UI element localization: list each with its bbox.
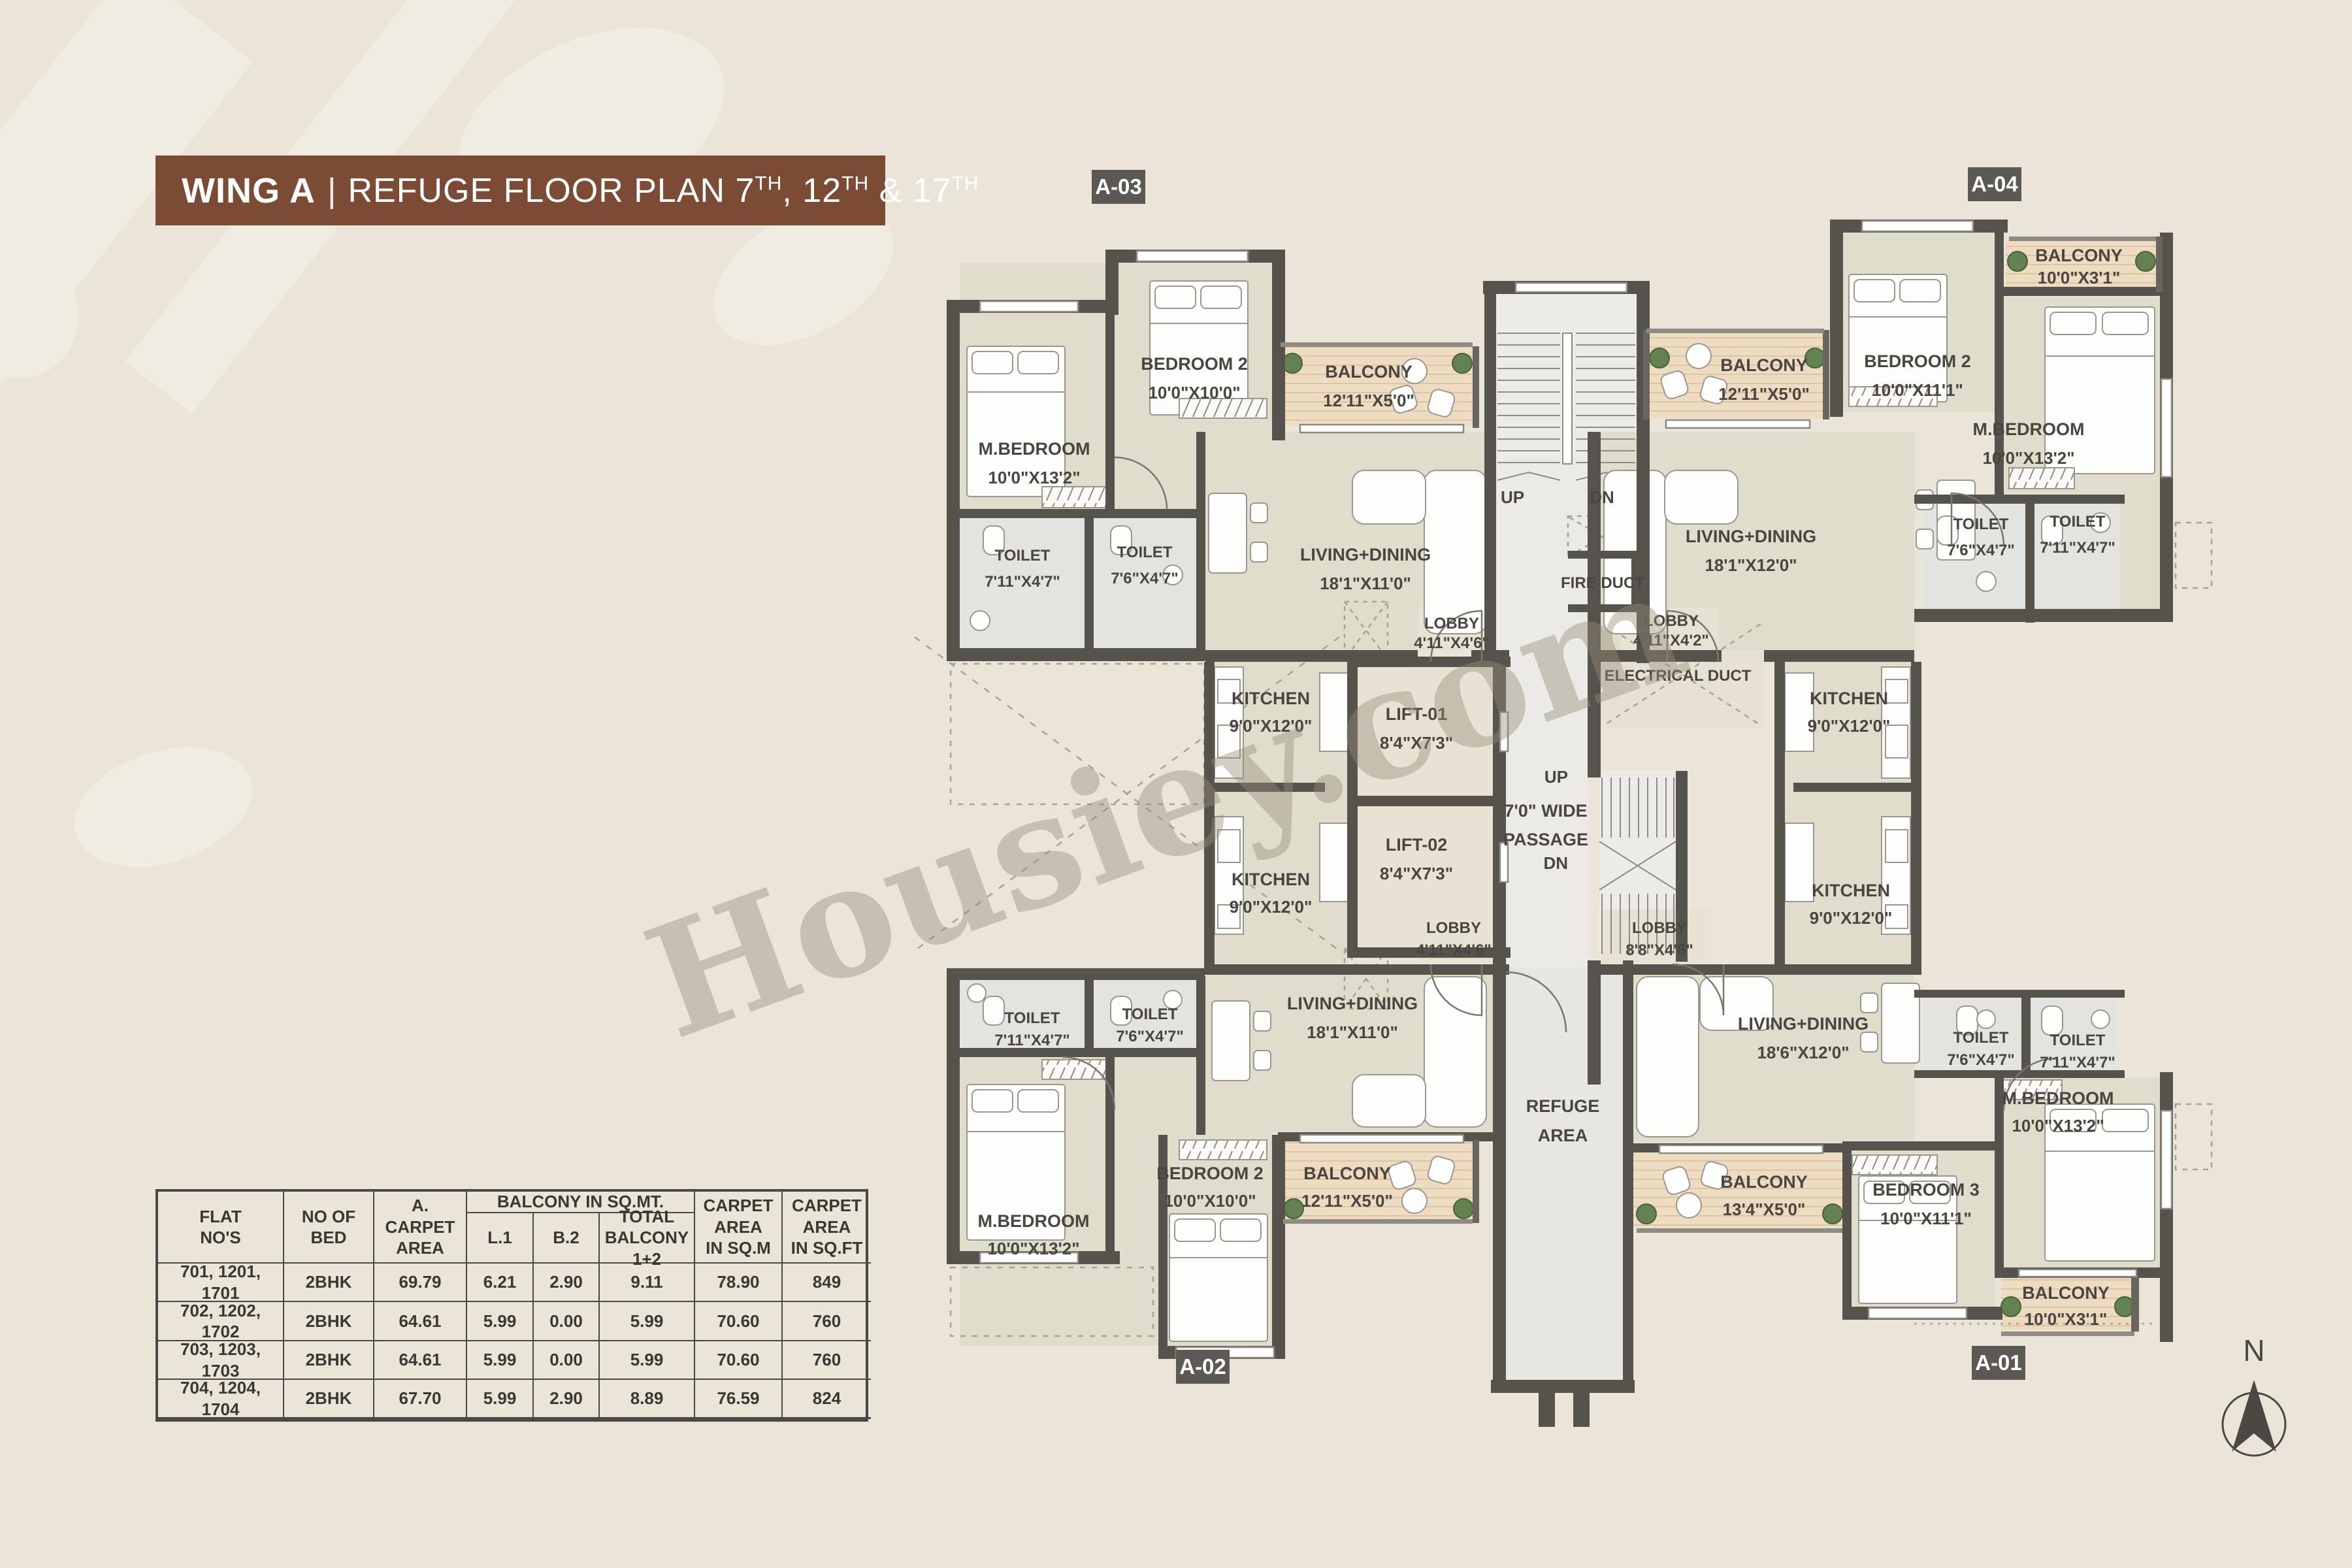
label-a02-toilet2-name: TOILET [1122, 1005, 1178, 1023]
label-a04-bedroom2-dims: 10'0"X11'1" [1872, 380, 1963, 400]
label-lift2-dims: 8'4"X7'3" [1380, 864, 1453, 883]
label-a02-toilet1-name: TOILET [1005, 1009, 1060, 1027]
table-cell-sqm: 70.60 [695, 1341, 783, 1380]
label-a01-balconyMain-name: BALCONY [1720, 1172, 1808, 1192]
label-a03-mbedroom-dims: 10'0"X13'2" [988, 468, 1080, 487]
label-a03-lobby-name: LOBBY [1424, 615, 1479, 632]
col-header-carpet: A. CARPET AREA [374, 1192, 467, 1264]
label-a01-toilet2-name: TOILET [2050, 1032, 2106, 1049]
label-a02-toilet1-dims: 7'11"X4'7" [994, 1032, 1070, 1049]
background-motif-leaf [59, 726, 268, 888]
label-a01-lobby-name: LOBBY [1632, 919, 1687, 937]
table-cell-bed: 2BHK [284, 1302, 374, 1341]
label-a03-kitchen-name: KITCHEN [1232, 689, 1310, 708]
table-cell-sqft: 849 [783, 1264, 871, 1302]
table-cell-total: 5.99 [600, 1302, 695, 1341]
label-a03-toilet2-dims: 7'6"X4'7" [1111, 570, 1179, 587]
label-a01-toilet1-dims: 7'6"X4'7" [1947, 1051, 2015, 1069]
table-cell-sqft: 824 [783, 1380, 871, 1419]
label-a01-lobby-dims: 8'8"X4'6" [1625, 941, 1693, 959]
label-a04-balconyL-dims: 12'11"X5'0" [1718, 384, 1810, 404]
label-a02-balcony-name: BALCONY [1303, 1164, 1391, 1183]
wardrobe [1179, 1140, 1267, 1160]
label-a04-balconyR-dims: 10'0"X3'1" [2038, 268, 2121, 287]
table-cell-b2: 0.00 [534, 1302, 600, 1341]
col-header-sqm: CARPET AREA IN SQ.M [695, 1192, 783, 1264]
label-a04-mbedroom-dims: 10'0"X13'2" [1982, 448, 2074, 468]
page-title-wing: WING A [182, 171, 316, 211]
label-a04-kitchen-name: KITCHEN [1810, 689, 1888, 708]
col-header-bed: NO OF BED [284, 1192, 374, 1264]
label-a04-balconyL-name: BALCONY [1720, 355, 1808, 375]
wardrobe [2009, 468, 2074, 489]
label-a04-kitchen-dims: 9'0"X12'0" [1808, 716, 1891, 736]
table-cell-carpet: 64.61 [374, 1302, 467, 1341]
label-a03-balcony-dims: 12'11"X5'0" [1323, 391, 1414, 410]
label-stair-top-up: UP [1501, 487, 1524, 507]
table-cell-total: 5.99 [600, 1341, 695, 1380]
table-cell-l1: 5.99 [467, 1302, 534, 1341]
label-a02-lobby-name: LOBBY [1426, 919, 1481, 937]
bed [1169, 1214, 1267, 1341]
label-a03-mbedroom-name: M.BEDROOM [979, 439, 1090, 459]
label-lift1-dims: 8'4"X7'3" [1380, 733, 1453, 753]
label-a01-mbedroom-name: M.BEDROOM [2002, 1088, 2114, 1108]
unit-badge-a04: A-04 [1968, 167, 2021, 201]
label-a02-bedroom2-name: BEDROOM 2 [1156, 1164, 1264, 1183]
title-divider: | [327, 171, 336, 210]
label-a04-living-dims: 18'1"X12'0" [1705, 555, 1797, 575]
table-cell-sqft: 760 [783, 1341, 871, 1380]
label-a03-living-dims: 18'1"X11'0" [1320, 574, 1411, 593]
label-a01-kitchen-name: KITCHEN [1812, 881, 1890, 900]
label-refuge-line1: REFUGE [1526, 1096, 1600, 1116]
col-header-flat: FLAT NO'S [158, 1192, 284, 1264]
label-a04-mbedroom-name: M.BEDROOM [1973, 419, 2085, 439]
table-cell-flat: 703, 1203, 1703 [158, 1341, 284, 1380]
label-a03-bedroom2-name: BEDROOM 2 [1141, 354, 1248, 374]
table-cell-l1: 5.99 [467, 1341, 534, 1380]
label-a03-toilet1-dims: 7'11"X4'7" [985, 573, 1060, 591]
wardrobe [1042, 1060, 1107, 1079]
label-lift2-name: LIFT-02 [1386, 835, 1448, 855]
label-a02-toilet2-dims: 7'6"X4'7" [1116, 1028, 1184, 1045]
label-lift1-name: LIFT-01 [1386, 704, 1448, 724]
label-passage-line1: 7'0" WIDE [1504, 801, 1587, 821]
label-a02-kitchen-dims: 9'0"X12'0" [1230, 897, 1313, 917]
table-cell-l1: 6.21 [467, 1264, 534, 1302]
label-a02-mbedroom-name: M.BEDROOM [978, 1211, 1090, 1231]
label-a02-kitchen-name: KITCHEN [1232, 870, 1310, 889]
title-banner: WING A | REFUGE FLOOR PLAN 7TH, 12TH & 1… [155, 155, 885, 225]
label-a04-bedroom2-name: BEDROOM 2 [1864, 351, 1971, 371]
table-cell-total: 8.89 [600, 1380, 695, 1419]
title-plan: REFUGE FLOOR PLAN 7 [348, 172, 755, 210]
label-stair-right-up: UP [1544, 767, 1568, 787]
label-a01-balconyMain-dims: 13'4"X5'0" [1723, 1200, 1806, 1219]
label-a01-living-name: LIVING+DINING [1738, 1014, 1869, 1034]
table-cell-b2: 2.90 [534, 1264, 600, 1302]
table-cell-bed: 2BHK [284, 1264, 374, 1302]
table-cell-flat: 702, 1202, 1702 [158, 1302, 284, 1341]
label-a01-toilet2-dims: 7'11"X4'7" [2040, 1054, 2115, 1071]
title-sup2: TH [841, 172, 869, 194]
col-header-sqft: CARPET AREA IN SQ.FT [783, 1192, 871, 1264]
label-a03-living-name: LIVING+DINING [1300, 545, 1431, 564]
label-a01-balconySmall-name: BALCONY [2022, 1283, 2110, 1303]
label-electrical-duct: ELECTRICAL DUCT [1605, 667, 1752, 685]
label-a04-lobby-name: LOBBY [1644, 612, 1699, 630]
label-a02-balcony-dims: 12'11"X5'0" [1301, 1191, 1393, 1211]
unit-badge-a03: A-03 [1092, 170, 1145, 204]
label-a04-living-name: LIVING+DINING [1686, 527, 1816, 546]
unit-badge-a02: A-02 [1176, 1350, 1230, 1384]
table-cell-total: 9.11 [600, 1264, 695, 1302]
label-a01-living-dims: 18'6"X12'0" [1757, 1043, 1849, 1062]
label-stair-top-dn: DN [1590, 487, 1614, 507]
label-a02-living-name: LIVING+DINING [1287, 994, 1418, 1013]
table-cell-l1: 5.99 [467, 1380, 534, 1419]
wardrobe [1042, 487, 1107, 508]
label-a02-lobby-dims: 4'11"X4'6" [1416, 941, 1492, 959]
title-mid: , 12 [782, 172, 841, 210]
label-a01-balconySmall-dims: 10'0"X3'1" [2025, 1309, 2108, 1329]
area-table: FLAT NO'S NO OF BED A. CARPET AREA BALCO… [155, 1189, 868, 1422]
floor-plan: M.BEDROOM 10'0"X13'2" BEDROOM 2 10'0"X10… [902, 150, 2293, 1503]
label-a04-toilet1-name: TOILET [1953, 515, 2009, 533]
label-a01-toilet1-name: TOILET [1953, 1029, 2009, 1047]
wardrobe [1852, 1155, 1937, 1175]
table-cell-sqm: 78.90 [695, 1264, 783, 1302]
label-a04-lobby-dims: 4'11"X4'2" [1633, 632, 1709, 649]
unit-badge-a01: A-01 [1972, 1346, 2025, 1380]
label-passage-line2: PASSAGE [1503, 830, 1588, 849]
table-cell-carpet: 69.79 [374, 1264, 467, 1302]
label-fire-duct: FIRE DUCT [1561, 574, 1644, 592]
label-a04-balconyR-name: BALCONY [2035, 246, 2123, 265]
table-cell-sqm: 76.59 [695, 1380, 783, 1419]
label-a02-bedroom2-dims: 10'0"X10'0" [1164, 1191, 1256, 1211]
col-header-l1: L.1 [467, 1213, 534, 1264]
label-a04-toilet2-name: TOILET [2050, 513, 2106, 531]
table-cell-flat: 704, 1204, 1704 [158, 1380, 284, 1419]
col-header-b2: B.2 [534, 1213, 600, 1264]
north-indicator: N [2195, 1333, 2313, 1490]
label-a02-mbedroom-dims: 10'0"X13'2" [987, 1239, 1079, 1258]
label-refuge-line2: AREA [1538, 1126, 1588, 1145]
table-cell-sqft: 760 [783, 1302, 871, 1341]
page-title-text: REFUGE FLOOR PLAN 7TH, 12TH & 17TH [348, 171, 979, 210]
label-a04-toilet1-dims: 7'6"X4'7" [1947, 542, 2015, 559]
col-header-total: TOTAL BALCONY 1+2 [600, 1213, 695, 1264]
table-cell-carpet: 67.70 [374, 1380, 467, 1419]
table-cell-b2: 2.90 [534, 1380, 600, 1419]
label-a04-toilet2-dims: 7'11"X4'7" [2040, 539, 2115, 557]
label-a02-living-dims: 18'1"X11'0" [1307, 1022, 1398, 1042]
label-a03-balcony-name: BALCONY [1325, 362, 1413, 382]
label-a01-mbedroom-dims: 10'0"X13'2" [2012, 1116, 2104, 1135]
label-a03-toilet2-name: TOILET [1117, 544, 1173, 561]
north-label: N [2195, 1333, 2313, 1368]
table-cell-sqm: 70.60 [695, 1302, 783, 1341]
label-stair-right-dn: DN [1543, 853, 1568, 873]
table-cell-bed: 2BHK [284, 1380, 374, 1419]
table-cell-flat: 701, 1201, 1701 [158, 1264, 284, 1302]
label-a03-bedroom2-dims: 10'0"X10'0" [1148, 383, 1240, 402]
label-a01-kitchen-dims: 9'0"X12'0" [1810, 908, 1893, 928]
label-a03-kitchen-dims: 9'0"X12'0" [1230, 716, 1313, 736]
title-sup1: TH [755, 172, 782, 194]
label-a03-toilet1-name: TOILET [995, 547, 1051, 564]
label-a01-bedroom3-name: BEDROOM 3 [1872, 1180, 1980, 1200]
table-cell-b2: 0.00 [534, 1341, 600, 1380]
table-cell-bed: 2BHK [284, 1341, 374, 1380]
label-a03-lobby-dims: 4'11"X4'6" [1414, 634, 1490, 652]
table-cell-carpet: 64.61 [374, 1341, 467, 1380]
label-a01-bedroom3-dims: 10'0"X11'1" [1880, 1209, 1972, 1228]
